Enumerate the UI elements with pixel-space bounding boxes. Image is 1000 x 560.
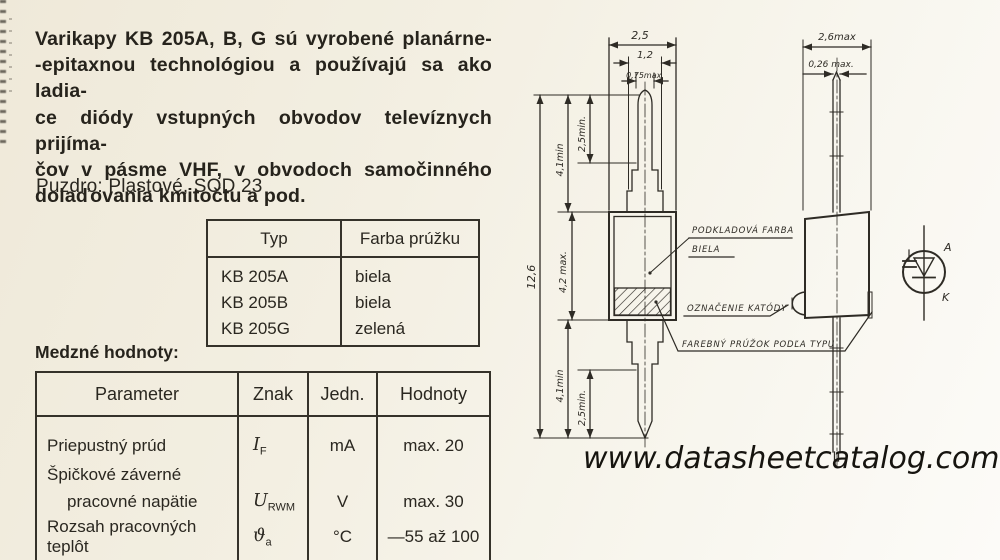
leader-base-color bbox=[651, 238, 689, 272]
label-color-stripe: FAREBNÝ PRÚŽOK PODĽA TYPU bbox=[682, 338, 835, 350]
symbol-cell: ϑa bbox=[238, 516, 308, 560]
color-cell: biela bbox=[341, 257, 479, 290]
type-cell: KB 205A bbox=[207, 257, 341, 290]
dim-text-2-5-bottom: 2,5min. bbox=[577, 390, 588, 426]
table-row: Špičkové záverné bbox=[36, 462, 490, 488]
cathode-stripe-hatch bbox=[615, 288, 671, 315]
parameter-cell: Špičkové záverné bbox=[36, 462, 238, 488]
table-row: Priepustný prúd IF mA max. 20 bbox=[36, 416, 490, 462]
limits-section-title: Medzné hodnoty: bbox=[35, 342, 179, 363]
unit-cell: mA bbox=[308, 416, 377, 462]
table-row: KB 205A biela bbox=[207, 257, 479, 290]
table-row: pracovné napätie URWM V max. 30 bbox=[36, 488, 490, 516]
color-cell: biela bbox=[341, 290, 479, 316]
type-cell: KB 205G bbox=[207, 316, 341, 346]
dim-text-4-1-top: 4,1min bbox=[555, 143, 566, 176]
table-row: Rozsah pracovných teplôt ϑa °C —55 až 10… bbox=[36, 516, 490, 560]
scan-edge-artifact bbox=[0, 0, 6, 148]
type-color-table: Typ Farba prúžku KB 205A biela KB 205B b… bbox=[206, 219, 480, 347]
top-lead-tip bbox=[833, 72, 840, 80]
side-view-drawing bbox=[792, 40, 872, 468]
intro-line: ce diódy vstupných obvodov televíznych p… bbox=[35, 105, 492, 157]
label-base-color-line1: PODKLADOVÁ FARBA bbox=[692, 224, 794, 236]
dim-text-0-75: 0,75max. bbox=[626, 71, 664, 80]
label-cathode-mark: OZNAČENIE KATÓDY bbox=[687, 302, 787, 314]
dim-text-4-1-bottom: 4,1min bbox=[555, 369, 566, 402]
value-cell: max. 20 bbox=[377, 416, 490, 462]
limits-header-jedn: Jedn. bbox=[308, 372, 377, 416]
color-cell: zelená bbox=[341, 316, 479, 346]
dim-text-2-5-top: 2,5min. bbox=[577, 116, 588, 152]
drawing-text: 2,5 1,2 0,75max. 12,6 4,1min 2,5min. 4,2… bbox=[525, 29, 952, 426]
symbol-cell: URWM bbox=[238, 488, 308, 516]
type-table-header-farba: Farba prúžku bbox=[341, 220, 479, 257]
value-cell: —55 až 100 bbox=[377, 516, 490, 560]
datasheet-page: Varikapy KB 205A, B, G sú vyrobené planá… bbox=[0, 0, 1000, 560]
front-view-drawing bbox=[534, 38, 872, 448]
parameter-cell: pracovné napätie bbox=[36, 488, 238, 516]
dim-text-2-6: 2,6max bbox=[818, 32, 856, 43]
limits-header-parameter: Parameter bbox=[36, 372, 238, 416]
limits-table: Parameter Znak Jedn. Hodnoty Priepustný … bbox=[35, 371, 491, 560]
dim-text-2-5: 2,5 bbox=[631, 29, 649, 42]
varicap-symbol bbox=[903, 226, 945, 320]
symbol-cell: IF bbox=[238, 416, 308, 462]
unit-cell: V bbox=[308, 488, 377, 516]
limits-header-hodnoty: Hodnoty bbox=[377, 372, 490, 416]
unit-cell: °C bbox=[308, 516, 377, 560]
symbol-cathode-label: K bbox=[942, 291, 950, 304]
dim-text-12-6: 12,6 bbox=[525, 265, 538, 290]
table-row: KB 205G zelená bbox=[207, 316, 479, 346]
label-base-color-line2: BIELA bbox=[692, 245, 720, 255]
value-cell: max. 30 bbox=[377, 488, 490, 516]
datasheetcatalog-watermark: www.datasheetcatalog.com bbox=[583, 441, 999, 476]
dim-text-4-2-body: 4,2 max. bbox=[558, 251, 569, 293]
parameter-cell: Priepustný prúd bbox=[36, 416, 238, 462]
dim-text-0-26: 0,26 max. bbox=[808, 60, 853, 70]
intro-line: -epitaxnou technológiou a používajú sa a… bbox=[35, 52, 492, 104]
intro-line: Varikapy KB 205A, B, G sú vyrobené planá… bbox=[35, 26, 492, 52]
limits-header-znak: Znak bbox=[238, 372, 308, 416]
parameter-cell: Rozsah pracovných teplôt bbox=[36, 516, 238, 560]
type-table-header-typ: Typ bbox=[207, 220, 341, 257]
package-outline-drawing: 2,5 1,2 0,75max. 12,6 4,1min 2,5min. 4,2… bbox=[520, 0, 1000, 560]
package-type-line: Puzdro: Plastové, SOD 23 bbox=[36, 176, 263, 198]
type-cell: KB 205B bbox=[207, 290, 341, 316]
cathode-bump bbox=[792, 292, 805, 315]
symbol-anode-label: A bbox=[943, 241, 952, 254]
scan-edge-artifact bbox=[9, 18, 12, 98]
table-row: KB 205B biela bbox=[207, 290, 479, 316]
dim-text-1-2: 1,2 bbox=[637, 50, 653, 61]
